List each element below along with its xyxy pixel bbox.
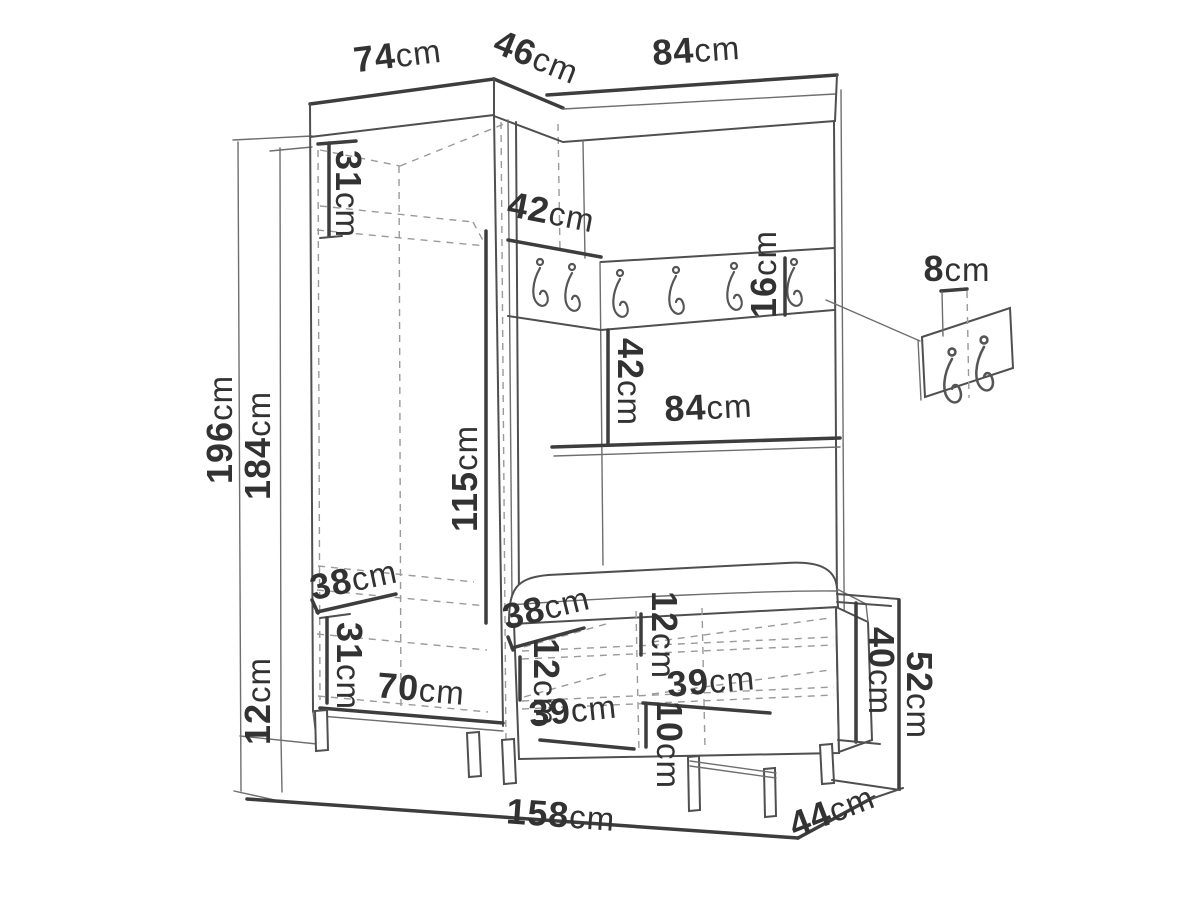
hook-detail	[826, 289, 1013, 402]
dim-hook-plate-width-label: 8cm	[923, 248, 990, 289]
dim-hanging-space-height-label: 115cm	[444, 425, 485, 532]
dim-total-width-label: 158cm	[505, 790, 617, 839]
dim-total-depth-label: 44cm	[783, 775, 880, 845]
dim-cabinet-height-label: 184cm	[237, 391, 278, 500]
dim-right-section-width-label: 84cm	[651, 26, 742, 73]
dim-cabinet-inner-width-label: 70cm	[375, 664, 466, 713]
dim-plinth-height-label: 12cm	[237, 657, 278, 745]
dim-inner-shelf-width-label: 84cm	[663, 384, 753, 430]
furniture-dimension-diagram: 74cm 46cm 84cm 31cm 42cm 16cm 8cm 42cm 8…	[0, 0, 1200, 899]
dim-rail-to-shelf-gap-label: 42cm	[610, 338, 651, 426]
dim-bench-bottom-compartment-label: 10cm	[649, 701, 690, 789]
dim-lower-compartment-height-label: 31cm	[329, 622, 370, 710]
dim-top-shelf-height-label: 31cm	[328, 150, 369, 238]
dim-left-section-width-label: 74cm	[351, 29, 443, 80]
dim-bench-total-height-label: 52cm	[899, 651, 940, 739]
dim-total-height-label: 196cm	[199, 375, 240, 484]
dim-shelf-depth-label: 38cm	[306, 550, 401, 608]
hallway-set-technical-drawing: 74cm 46cm 84cm 31cm 42cm 16cm 8cm 42cm 8…	[0, 0, 1200, 899]
dim-hook-rail-height-label: 16cm	[743, 230, 784, 318]
dim-bench-cabinet-height-label: 40cm	[861, 627, 902, 715]
hook-rail	[508, 240, 834, 330]
